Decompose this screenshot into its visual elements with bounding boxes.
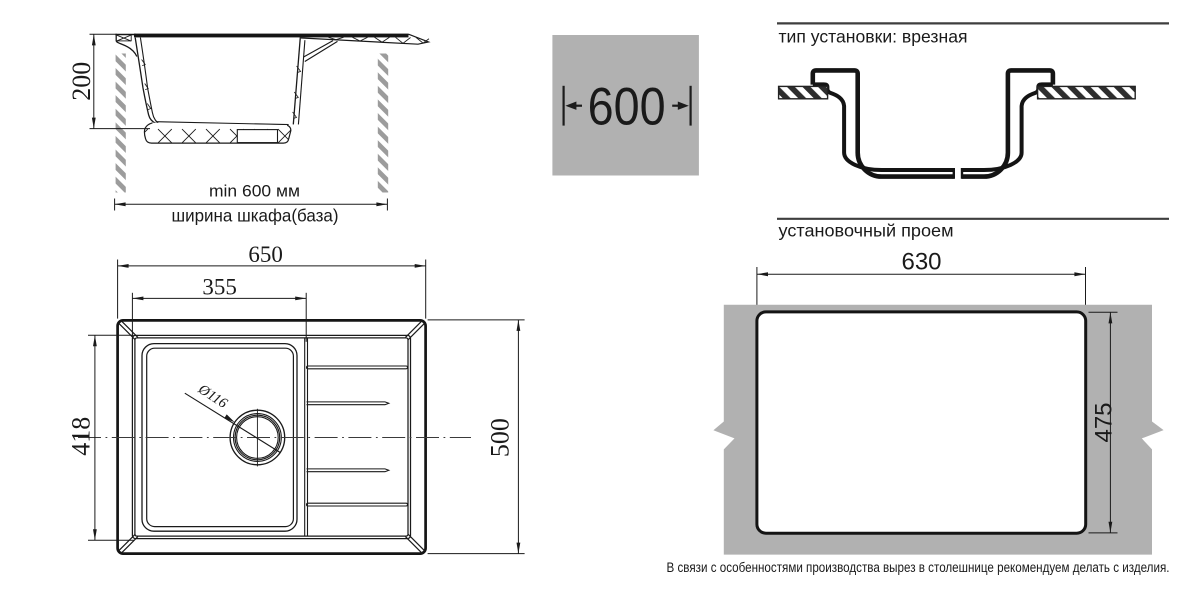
svg-text:630: 630 <box>901 249 941 276</box>
svg-text:В связи с особенностями произв: В связи с особенностями производства выр… <box>667 560 1170 575</box>
svg-text:418: 418 <box>67 417 96 456</box>
svg-text:355: 355 <box>202 274 237 299</box>
svg-text:600: 600 <box>588 77 666 136</box>
svg-text:475: 475 <box>1090 402 1117 442</box>
svg-text:min 600 мм: min 600 мм <box>209 182 300 201</box>
svg-text:650: 650 <box>248 242 283 267</box>
svg-text:установочный проем: установочный проем <box>779 221 954 241</box>
svg-text:500: 500 <box>485 418 514 457</box>
svg-text:тип установки: врезная: тип установки: врезная <box>779 27 968 47</box>
svg-text:200: 200 <box>67 62 96 101</box>
svg-text:ширина шкафа(база): ширина шкафа(база) <box>172 206 339 226</box>
